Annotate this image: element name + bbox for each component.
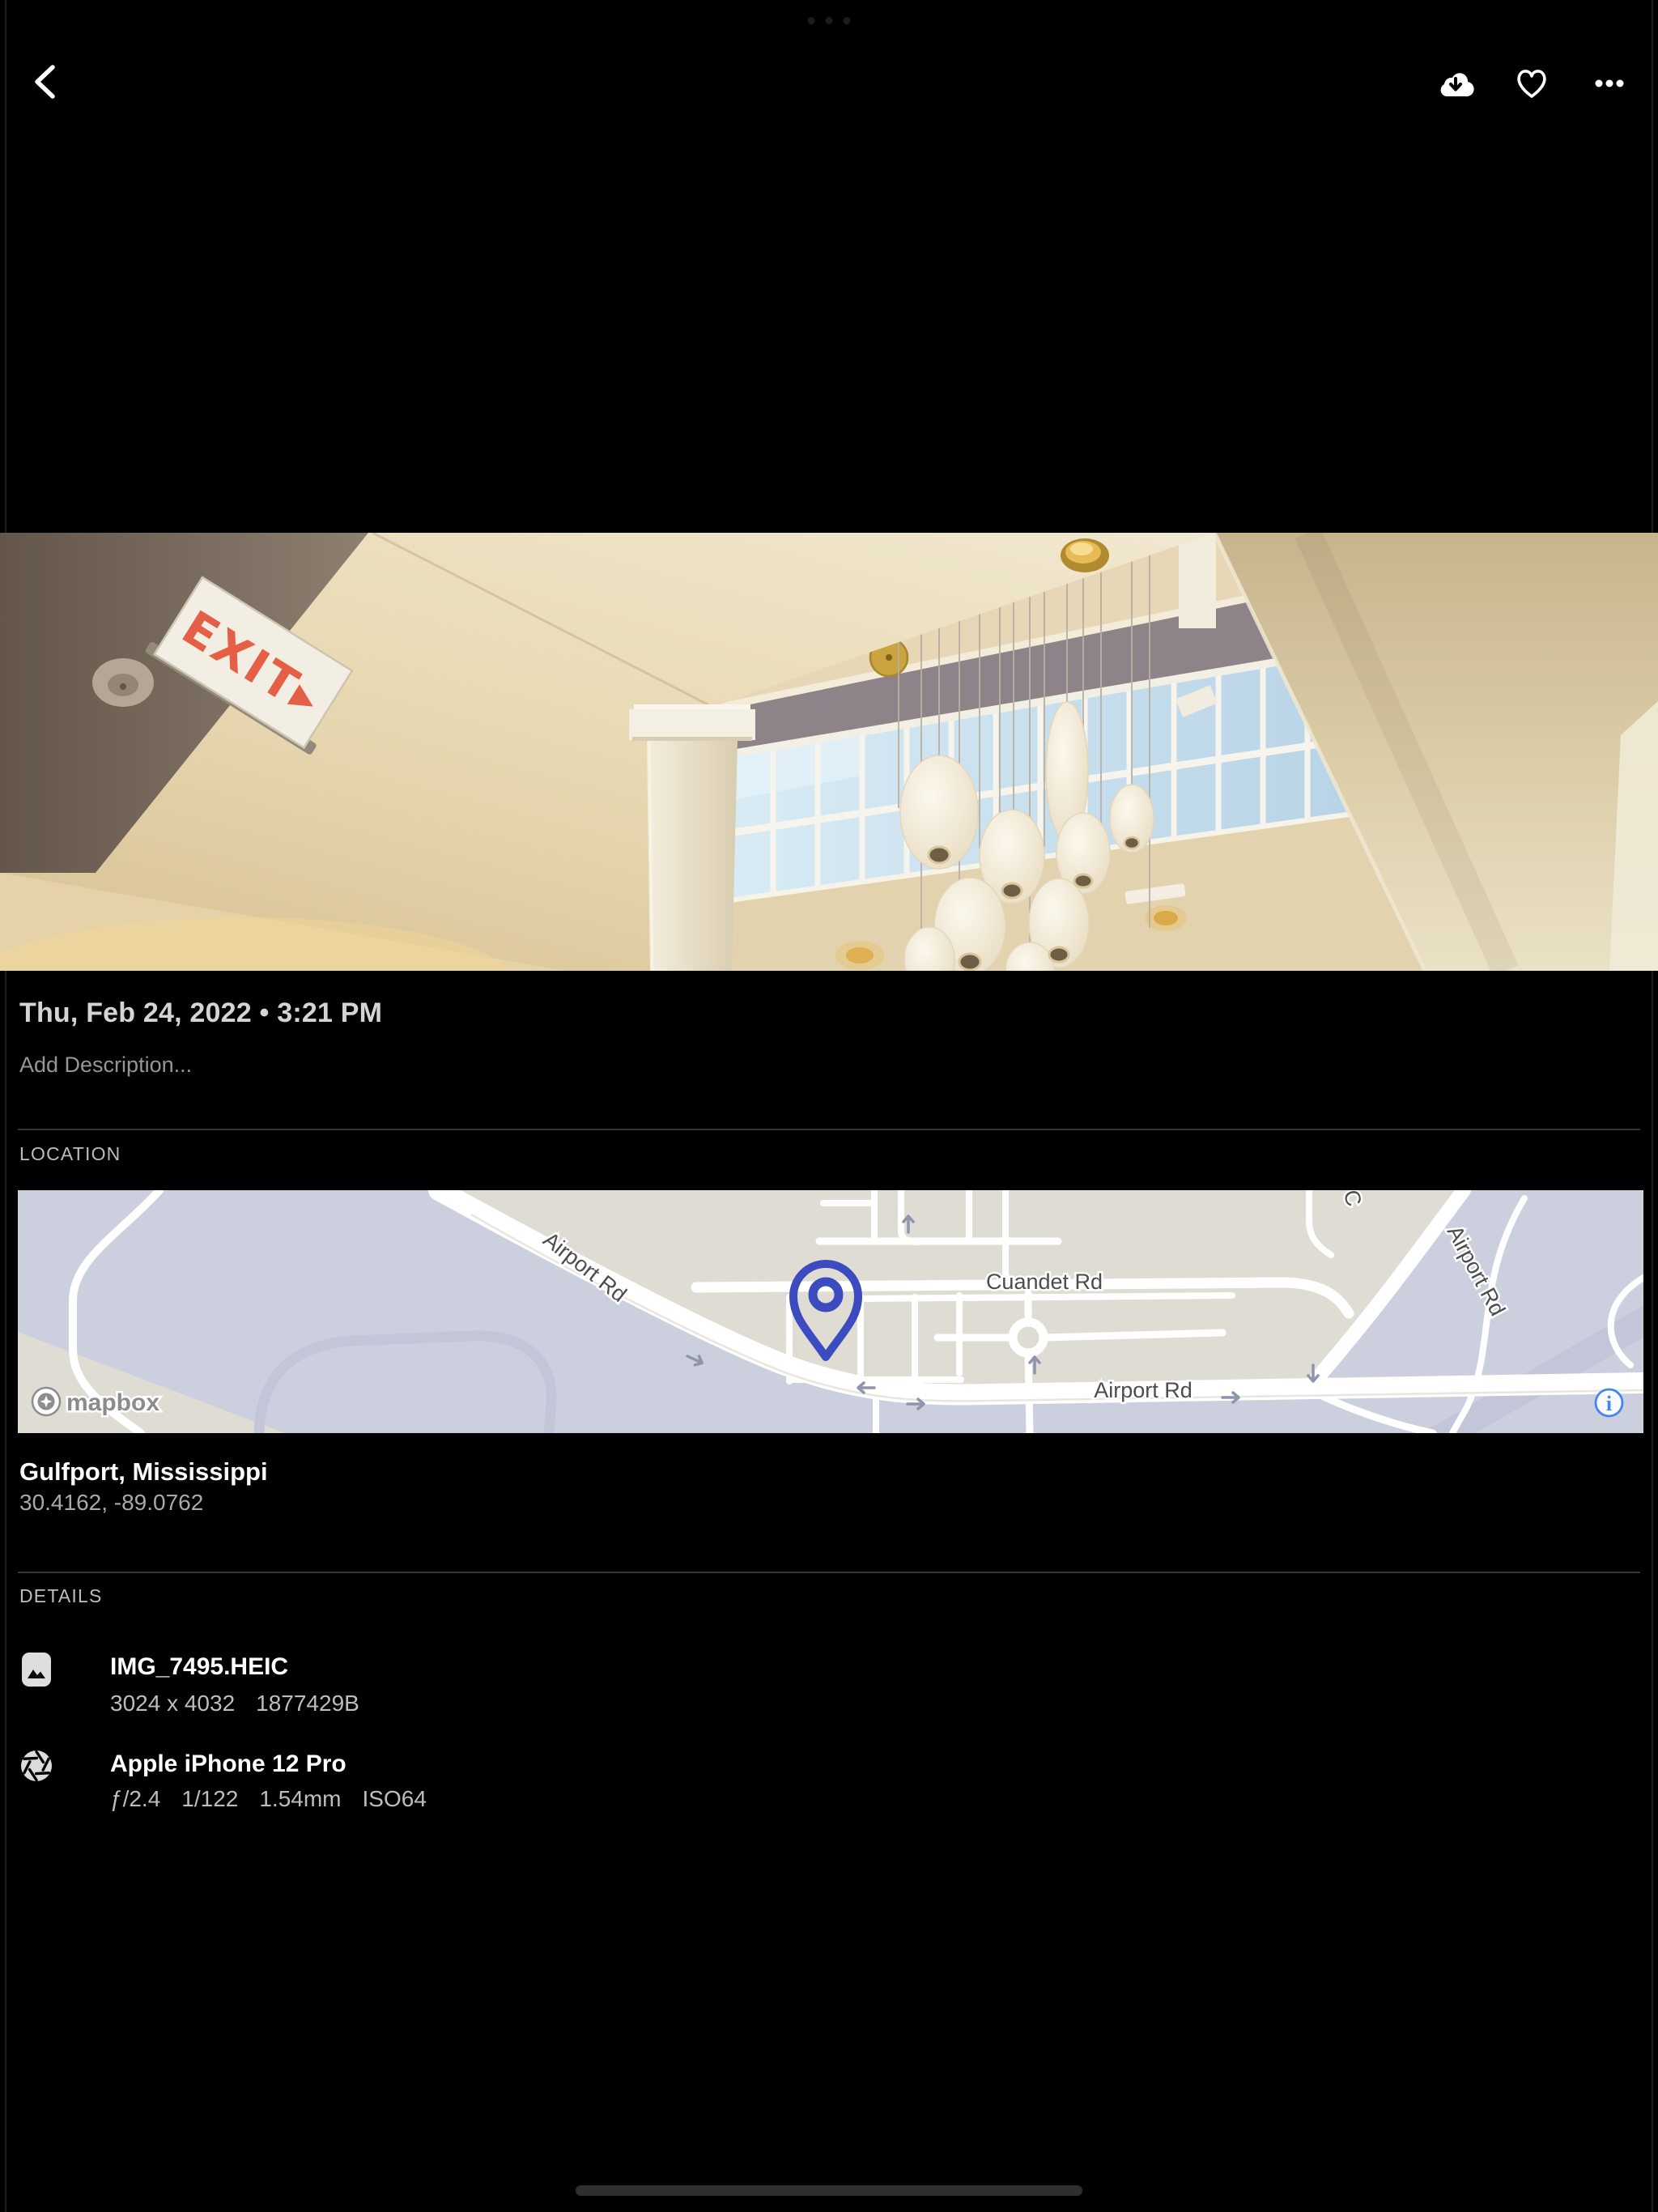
divider — [18, 1129, 1640, 1130]
photo-datetime: Thu, Feb 24, 2022 • 3:21 PM — [19, 998, 382, 1029]
file-size: 1877429B — [256, 1691, 359, 1716]
exif-focal-length: 1.54mm — [259, 1786, 341, 1812]
heart-icon — [1512, 64, 1551, 107]
more-options-button[interactable] — [1590, 66, 1629, 104]
file-resolution: 3024 x 4032 — [110, 1691, 235, 1716]
camera-exif: ƒ/2.4 1/122 1.54mm ISO64 — [110, 1786, 427, 1812]
camera-name: Apple iPhone 12 Pro — [110, 1750, 346, 1778]
photo-viewer[interactable]: EXIT▸ — [0, 533, 1658, 971]
multitask-indicator[interactable] — [808, 17, 851, 24]
chevron-left-icon — [28, 62, 66, 105]
back-button[interactable] — [28, 64, 66, 103]
photo-interior-atrium: EXIT▸ — [0, 533, 1658, 971]
map-label-airport-rd-bottom: Airport Rd — [1094, 1378, 1192, 1402]
location-coordinates: 30.4162, -89.0762 — [19, 1490, 203, 1516]
download-button[interactable] — [1436, 66, 1475, 104]
mapbox-wordmark: mapbox — [66, 1389, 159, 1416]
home-indicator[interactable] — [576, 2185, 1082, 2196]
mapbox-attribution[interactable]: mapbox — [32, 1388, 159, 1416]
exif-shutter: 1/122 — [181, 1786, 238, 1812]
aperture-icon — [19, 1749, 53, 1787]
details-section-label: DETAILS — [19, 1585, 103, 1607]
ellipsis-icon — [1590, 64, 1629, 107]
file-name: IMG_7495.HEIC — [110, 1653, 288, 1681]
info-glyph: i — [1606, 1392, 1612, 1415]
left-edge-line — [5, 0, 6, 2212]
location-place: Gulfport, Mississippi — [19, 1457, 268, 1487]
photo-detail-screen: EXIT▸ Thu, Feb 24, 2022 • 3:21 PM Add De… — [0, 0, 1658, 2212]
right-edge-line — [1652, 0, 1653, 2212]
favorite-button[interactable] — [1512, 66, 1551, 104]
file-meta: 3024 x 4032 1877429B — [110, 1691, 359, 1716]
location-map[interactable]: Airport Rd Cuandet Rd Airport Rd Airport… — [18, 1190, 1643, 1433]
file-type-icon — [21, 1652, 52, 1691]
map-label-cuandet-rd: Cuandet Rd — [986, 1270, 1103, 1294]
description-field[interactable]: Add Description... — [19, 1053, 192, 1078]
cloud-download-icon — [1436, 64, 1475, 107]
location-section-label: LOCATION — [19, 1143, 121, 1165]
map-info-button[interactable]: i — [1596, 1389, 1622, 1416]
exif-iso: ISO64 — [363, 1786, 427, 1812]
divider — [18, 1572, 1640, 1573]
map-canvas: Airport Rd Cuandet Rd Airport Rd Airport… — [18, 1190, 1643, 1433]
exif-aperture: ƒ/2.4 — [110, 1786, 160, 1812]
